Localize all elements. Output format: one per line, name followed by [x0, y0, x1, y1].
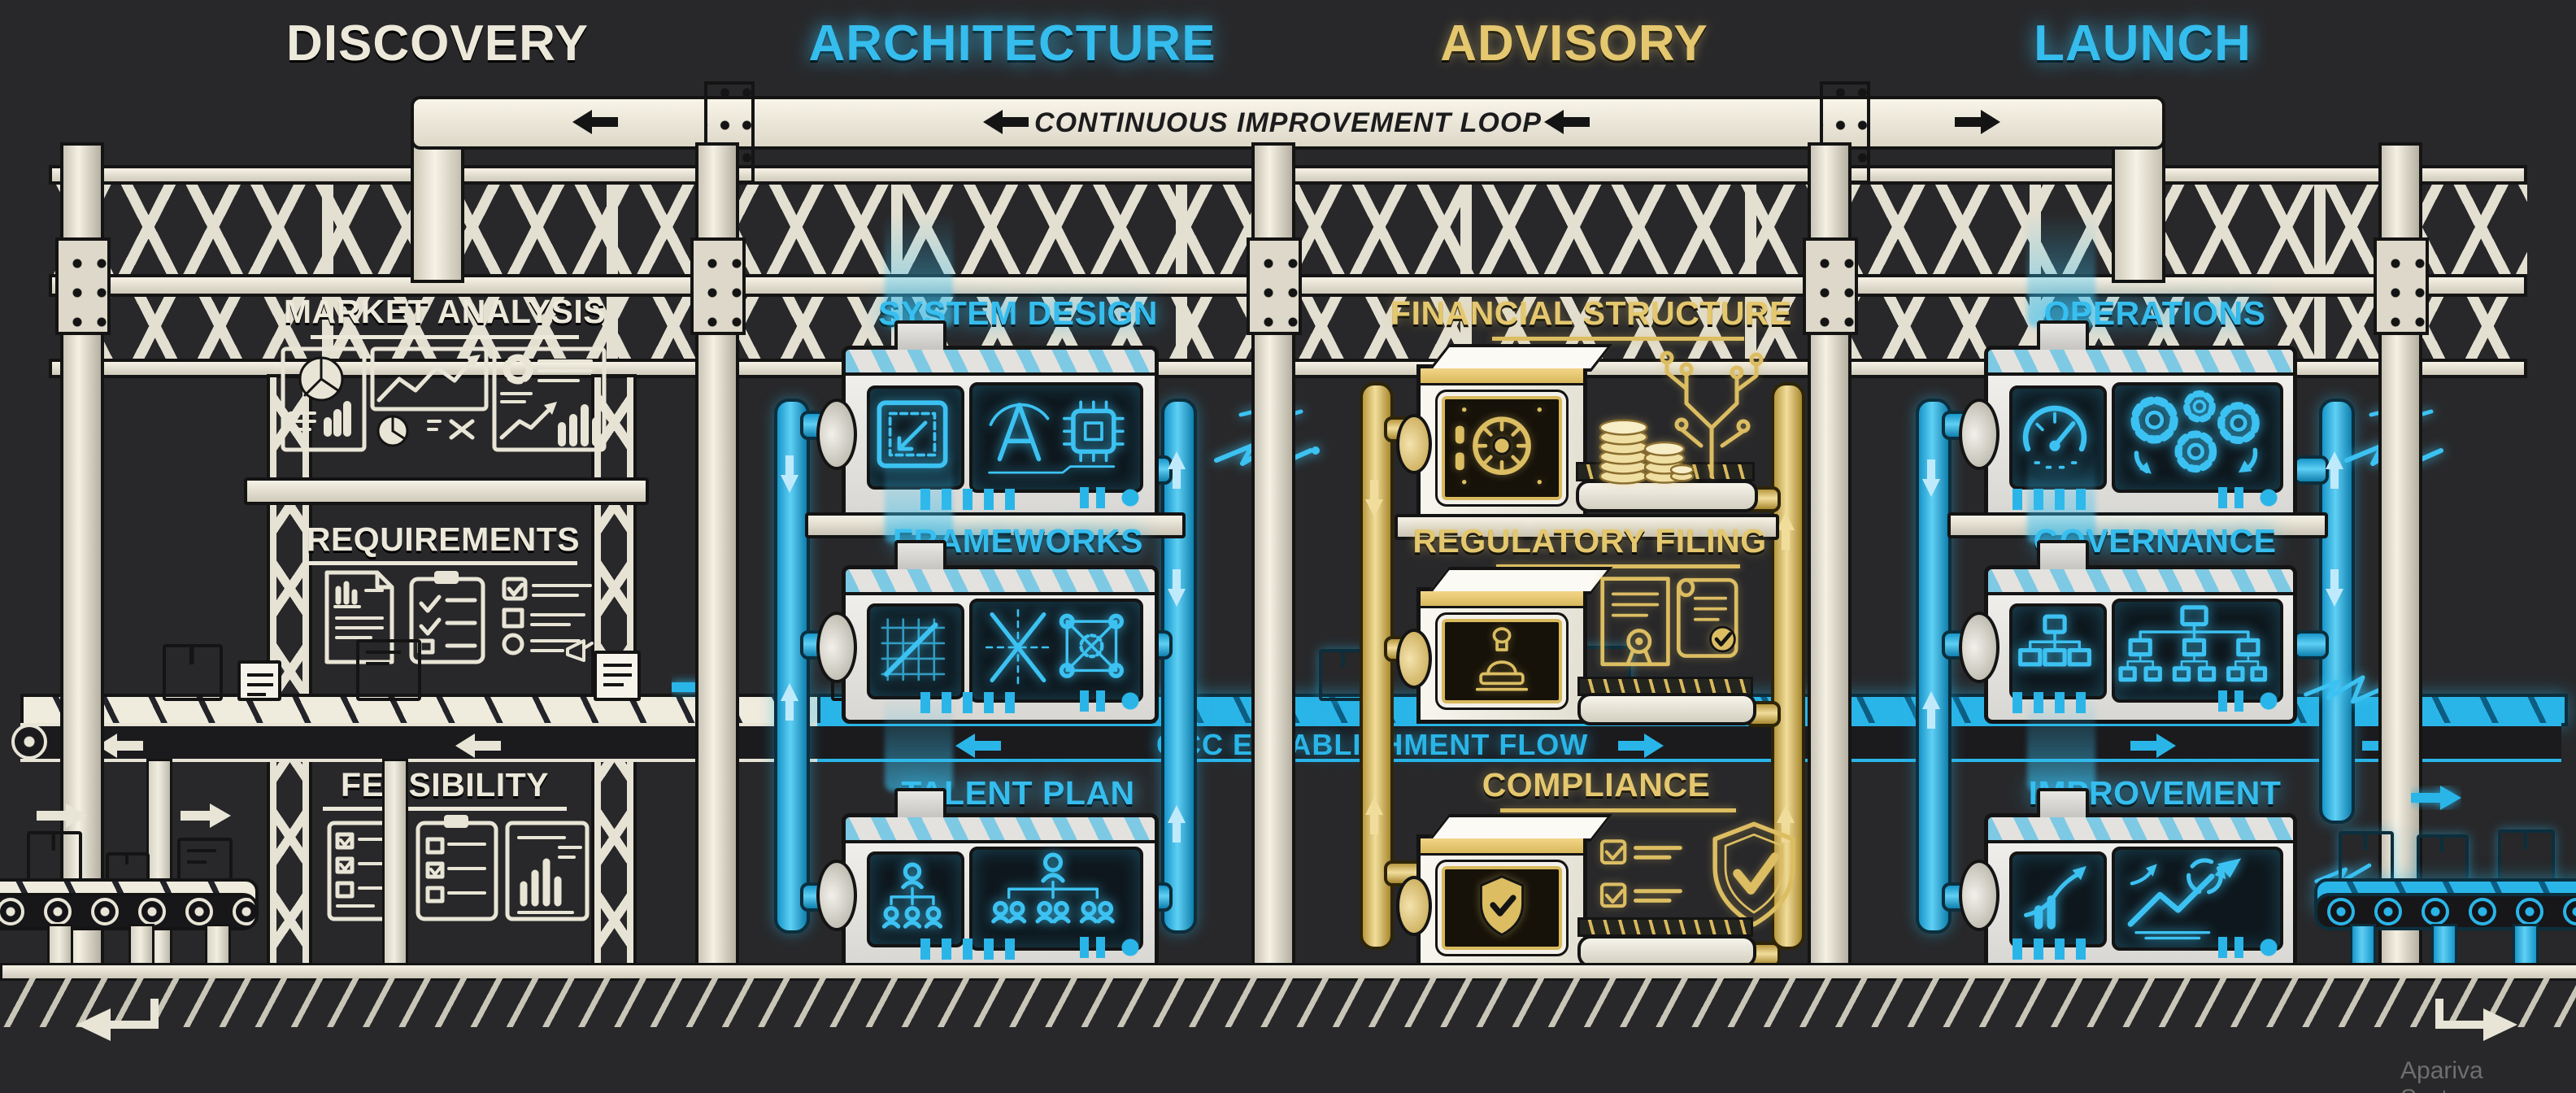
- machine-indicators: [2218, 690, 2278, 712]
- gears-icon: [2115, 385, 2274, 483]
- title-underline: [1500, 808, 1736, 812]
- regulatory-stamp-machine: [1416, 587, 1587, 724]
- talent-plan-machine: [842, 813, 1159, 970]
- machine-glow: [885, 447, 953, 543]
- machine-intake: [1959, 612, 1999, 683]
- gears-screen: [2112, 382, 2283, 493]
- machine-indicators: [1080, 690, 1140, 712]
- cube-intake: [1396, 876, 1432, 936]
- growth-screen: [2009, 851, 2107, 947]
- up-arrow-icon: [1365, 797, 1383, 834]
- right-arrow-icon: [37, 803, 87, 828]
- conveyor-leg: [205, 924, 231, 968]
- up-arrow-icon: [2326, 451, 2343, 489]
- phase-header-advisory: ADVISORY: [1440, 15, 1708, 72]
- left-arrow-icon: [983, 110, 1029, 134]
- right-arrow-icon: [2130, 734, 2176, 758]
- compass-chip-icon: [973, 385, 1134, 483]
- growth-arrow-icon: [2012, 855, 2097, 938]
- ground-hatching: [0, 978, 2576, 1027]
- design-screen: [969, 382, 1143, 493]
- right-arrow-icon: [2411, 786, 2461, 810]
- cube-intake: [1396, 629, 1432, 689]
- conveyor-leg: [382, 759, 408, 967]
- checklist-icon: [1590, 834, 1693, 922]
- cube-lid: [1427, 814, 1613, 842]
- labeled-box: [356, 639, 421, 701]
- shield-outline-icon: [1701, 818, 1807, 930]
- conveyor-leg: [2431, 924, 2457, 968]
- banner-label: CONTINUOUS IMPROVEMENT LOOP: [1034, 107, 1542, 139]
- cube-intake: [1396, 414, 1432, 474]
- machine-roof: [846, 350, 1155, 376]
- shield-check-icon: [1445, 869, 1559, 947]
- blue-package-box: [2339, 831, 2394, 885]
- machine-glow: [2027, 695, 2095, 791]
- phase-header-architecture: ARCHITECTURE: [808, 15, 1216, 72]
- exit-right-arrow-icon: [2431, 997, 2522, 1047]
- phase-header-discovery: DISCOVERY: [286, 15, 589, 72]
- down-arrow-icon: [1365, 480, 1383, 517]
- market-analysis-dashboard-icons: [281, 346, 630, 452]
- shield-panel: [1442, 866, 1562, 950]
- conveyor-leg: [128, 924, 154, 968]
- column-rivet-plate: [1803, 237, 1858, 335]
- blue-package-box: [2417, 834, 2469, 885]
- gcc-factory-diagram: CONTINUOUS IMPROVEMENT LOOP DISCOVERY AR…: [0, 0, 2576, 1093]
- document-sheet: [594, 651, 641, 701]
- pipe-stub: [2293, 455, 2329, 485]
- machine-vents: [920, 938, 1018, 960]
- down-arrow-icon: [1168, 569, 1186, 607]
- machine-roof: [1988, 350, 2293, 376]
- scroll-check-icon: [1664, 571, 1757, 673]
- column-rivet-plate: [1247, 237, 1302, 335]
- title-underline: [323, 807, 567, 811]
- org-screen: [2009, 603, 2107, 699]
- team-hierarchy-icon: [973, 850, 1134, 941]
- machine-glow: [885, 695, 953, 791]
- document-stack: [237, 660, 281, 701]
- conveyor-leg: [2513, 924, 2539, 968]
- stamp-icon: [1445, 622, 1559, 700]
- machine-roof: [1988, 817, 2293, 843]
- machine-intake: [816, 612, 857, 683]
- circuit-icon: [1651, 348, 1773, 478]
- cube-gold-band: [1421, 368, 1583, 385]
- column-rivet-plate: [2374, 237, 2429, 335]
- machine-intake: [816, 398, 857, 470]
- left-arrow-icon: [572, 110, 618, 134]
- x-node-diagram-icon: [973, 602, 1134, 693]
- package-box: [27, 831, 82, 885]
- cube-gold-band: [1421, 591, 1583, 608]
- machine-indicators: [1080, 487, 1140, 508]
- feasibility-checklist-icons: [327, 815, 591, 922]
- station-title-financial-structure: FINANCIAL STRUCTURE: [1390, 294, 1792, 333]
- diagram-screen: [969, 599, 1143, 703]
- improvement-machine: [1984, 813, 2297, 970]
- up-arrow-icon: [1168, 805, 1186, 843]
- org-chart-icon: [870, 855, 955, 938]
- machine-glow: [2027, 213, 2095, 327]
- station-title-requirements: REQUIREMENTS: [307, 520, 580, 559]
- machine-roof: [846, 817, 1155, 843]
- org-tree-screen: [2112, 599, 2283, 703]
- up-arrow-icon: [1922, 691, 1940, 729]
- stamp-panel: [1442, 619, 1562, 703]
- up-arrow-icon: [1777, 512, 1795, 550]
- grid-screen: [867, 603, 964, 699]
- org-chart-icon: [2012, 607, 2097, 690]
- title-underline: [1492, 337, 1744, 341]
- left-arrow-icon: [1544, 110, 1590, 134]
- column-rivet-plate: [55, 237, 111, 335]
- title-underline: [311, 335, 579, 339]
- compliance-machine: [1416, 834, 1587, 970]
- rack-shelf-board: [244, 477, 649, 505]
- machine-glow: [885, 213, 953, 327]
- down-arrow-icon: [781, 455, 798, 493]
- left-arrow-icon: [955, 734, 1001, 758]
- cube-gold-band: [1421, 838, 1583, 856]
- station-title-compliance: COMPLIANCE: [1482, 766, 1711, 804]
- vault-door-panel: [1442, 396, 1562, 500]
- mini-belt-slats: [1577, 917, 1753, 937]
- watermark: Apariva Systems: [2400, 1057, 2576, 1093]
- conveyor-band-blue: [817, 723, 2561, 762]
- cube-lid: [1427, 567, 1613, 594]
- machine-glow: [2027, 447, 2095, 543]
- title-underline: [309, 561, 577, 565]
- column-rivet-plate: [690, 237, 746, 335]
- machine-roof: [1988, 569, 2293, 595]
- left-arrow-icon: [98, 734, 143, 758]
- station-title-regulatory-filing: REGULATORY FILING: [1412, 522, 1766, 560]
- up-arrow-icon: [781, 683, 798, 721]
- left-arrow-icon: [455, 734, 501, 758]
- machine-intake: [1959, 398, 1999, 470]
- return-left-arrow-icon: [72, 997, 163, 1047]
- financial-vault: [1416, 364, 1587, 520]
- cycle-growth-screen: [2112, 847, 2283, 951]
- machine-vents: [2012, 938, 2086, 960]
- machine-indicators: [1080, 937, 1140, 958]
- cycle-growth-icon: [2115, 850, 2274, 941]
- conveyor-leg: [47, 924, 73, 968]
- down-arrow-icon: [2326, 569, 2343, 607]
- station-title-feasibility: FEASIBILITY: [341, 766, 549, 804]
- vault-dial-icon: [1445, 399, 1559, 495]
- mini-belt: [1577, 693, 1756, 725]
- belt-end-roller: [11, 724, 47, 760]
- down-arrow-icon: [1922, 459, 1940, 497]
- right-arrow-icon: [1955, 110, 2000, 134]
- package-box: [163, 644, 223, 701]
- machine-intake: [816, 860, 857, 931]
- org-screen: [867, 851, 964, 947]
- conveyor-leg: [2350, 924, 2376, 968]
- right-arrow-icon: [1618, 734, 1664, 758]
- machine-roof: [846, 569, 1155, 595]
- grid-graph-icon: [870, 607, 955, 690]
- machine-intake: [1959, 860, 1999, 931]
- phase-header-launch: LAUNCH: [2034, 15, 2252, 72]
- blue-package-box: [2498, 830, 2555, 885]
- right-arrow-icon: [181, 803, 231, 828]
- station-title-market-analysis: MARKET ANALYSIS: [284, 293, 606, 331]
- team-screen: [969, 847, 1143, 951]
- machine-indicators: [2218, 937, 2278, 958]
- up-arrow-icon: [1168, 451, 1186, 489]
- machine-indicators: [2218, 487, 2278, 508]
- org-tree-icon: [2115, 602, 2274, 693]
